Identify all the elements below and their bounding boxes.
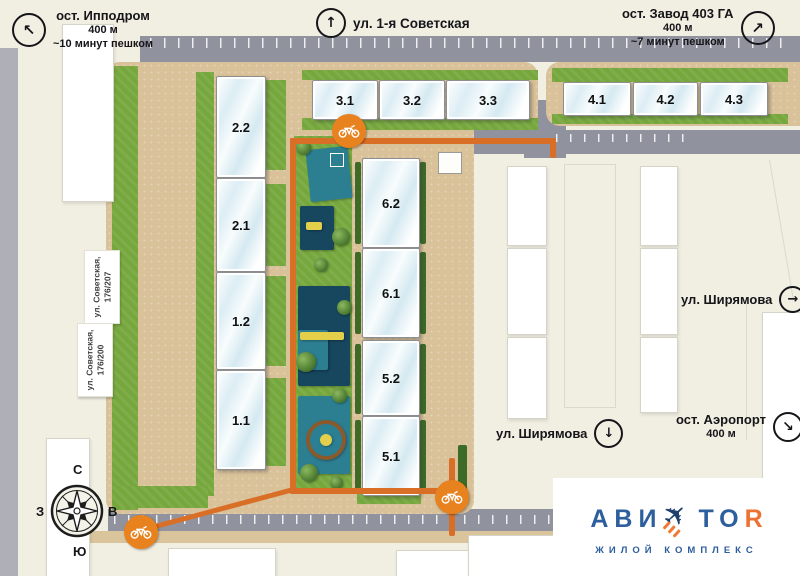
utility-box: [438, 152, 462, 174]
building-label: 6.2: [382, 196, 400, 211]
tree: [332, 388, 347, 403]
building-label: 5.2: [382, 371, 400, 386]
grass-strip: [266, 80, 286, 170]
building-4-1[interactable]: 4.1: [563, 82, 631, 116]
address-text: ул. Советская, 176/200: [84, 330, 106, 391]
building-5-2[interactable]: 5.2: [362, 340, 420, 416]
building-4-2[interactable]: 4.2: [633, 82, 698, 116]
logo-text-2: ТО: [698, 505, 744, 534]
compass-east-label: В: [108, 504, 117, 519]
building-6-2[interactable]: 6.2: [362, 158, 420, 248]
nav-shiryamova-right-text: ул. Ширямова: [681, 292, 772, 307]
neighbor-building: [507, 337, 547, 419]
logo: АВИ ✈ ТО R: [590, 499, 762, 541]
address-text: ул. Советская, 176/207: [91, 257, 113, 318]
grass-strip: [266, 378, 286, 466]
grass-strip: [196, 72, 214, 496]
address-label: ул. Советская, 176/200: [77, 323, 113, 397]
playground-feature: [300, 332, 344, 340]
neighbor-building-outline: [564, 164, 616, 408]
playground-feature-icon: [330, 153, 344, 167]
building-2-2[interactable]: 2.2: [216, 76, 266, 178]
bike-path-segment: [290, 138, 296, 494]
neighbor-building: [507, 248, 547, 335]
nav-zavod-text: ост. Завод 403 ГА 400 м ~7 минут пешком: [622, 6, 734, 50]
compass-west-label: З: [36, 504, 44, 519]
grass-strip: [266, 276, 286, 366]
road-left: [0, 48, 18, 576]
building-1-2[interactable]: 1.2: [216, 272, 266, 370]
playground-feature: [306, 222, 322, 230]
building-3-3[interactable]: 3.3: [446, 80, 530, 120]
logo-text-1: АВИ: [590, 505, 662, 534]
building-4-3[interactable]: 4.3: [700, 82, 768, 116]
logo-text-3: R: [745, 505, 763, 534]
building-label: 3.2: [403, 93, 421, 108]
grass-strip: [552, 68, 788, 82]
arrow-up-right-icon: ↗: [741, 11, 775, 45]
bicycle-icon: [130, 525, 152, 540]
bike-marker: [124, 515, 158, 549]
nav-airport-text: ост. Аэропорт 400 м: [676, 412, 766, 442]
compass-south-label: Ю: [73, 544, 86, 559]
neighbor-building: [640, 337, 678, 413]
building-5-1[interactable]: 5.1: [362, 416, 420, 496]
hedge-row: [420, 420, 426, 492]
hedge-row: [355, 344, 361, 414]
compass: С Ю З В: [36, 460, 118, 560]
building-label: 5.1: [382, 449, 400, 464]
building-label: 3.1: [336, 93, 354, 108]
grass-strip: [112, 486, 208, 508]
bike-path-segment: [290, 138, 556, 144]
tree: [337, 300, 352, 315]
neighbor-building: [640, 248, 678, 335]
building-label: 3.3: [479, 93, 497, 108]
grass-strip: [266, 184, 286, 266]
nav-sovetskaya-text: ул. 1-я Советская: [353, 16, 470, 31]
site-plan-canvas: 2.2 2.1 1.2 1.1 3.1 3.2 3.3 4.1 4.2 4.3 …: [0, 0, 800, 576]
hedge-row: [355, 420, 361, 492]
neighbor-building: [168, 548, 276, 576]
building-label: 4.3: [725, 92, 743, 107]
hedge-row: [420, 344, 426, 414]
building-label: 1.2: [232, 314, 250, 329]
bike-path-segment: [550, 142, 556, 158]
neighbor-building: [640, 166, 678, 246]
nav-shiryamova-down-text: ул. Ширямова: [496, 426, 587, 441]
building-label: 2.1: [232, 218, 250, 233]
nav-airport: ост. Аэропорт 400 м ↘: [676, 412, 800, 442]
arrow-up-icon: ↑: [316, 8, 346, 38]
playground-feature: [320, 434, 332, 446]
address-label: ул. Советская, 176/207: [84, 250, 120, 324]
arrow-down-icon: ↓: [594, 419, 623, 448]
bike-marker: [332, 114, 366, 148]
nav-shiryamova-right: ул. Ширямова →: [681, 286, 800, 313]
hedge-row: [420, 162, 426, 244]
hedge-row: [355, 162, 361, 244]
bike-marker: [435, 480, 469, 514]
street-curb-line: [769, 160, 794, 300]
hedge-row: [355, 252, 361, 334]
arrow-up-left-icon: ↖: [12, 13, 46, 47]
building-2-1[interactable]: 2.1: [216, 178, 266, 272]
neighbor-building: [468, 535, 556, 576]
compass-rose-icon: [49, 483, 105, 539]
building-3-2[interactable]: 3.2: [379, 80, 445, 120]
parking-dashes-right-top: [556, 134, 696, 142]
nav-shiryamova-down: ул. Ширямова ↓: [496, 419, 623, 448]
tree: [332, 228, 350, 246]
logo-card: АВИ ✈ ТО R ЖИЛОЙ КОМПЛЕКС: [553, 478, 800, 576]
building-label: 2.2: [232, 120, 250, 135]
bike-path-segment: [290, 488, 456, 494]
building-label: 4.1: [588, 92, 606, 107]
building-label: 1.1: [232, 413, 250, 428]
building-1-1[interactable]: 1.1: [216, 370, 266, 470]
building-label: 4.2: [656, 92, 674, 107]
nav-sovetskaya: ↑ ул. 1-я Советская: [316, 8, 470, 38]
logo-subtitle: ЖИЛОЙ КОМПЛЕКС: [595, 545, 757, 556]
grass-strip: [302, 70, 538, 80]
nav-hippodrome-text: ост. Ипподром 400 м ~10 минут пешком: [53, 8, 153, 52]
hedge-row: [420, 252, 426, 334]
arrow-right-icon: →: [779, 286, 800, 313]
neighbor-building: [762, 312, 800, 484]
tree: [296, 352, 316, 372]
logo-jet-icon: ✈: [660, 499, 696, 535]
nav-hippodrome: ↖ ост. Ипподром 400 м ~10 минут пешком: [12, 8, 153, 52]
tree: [300, 464, 318, 482]
building-6-1[interactable]: 6.1: [362, 248, 420, 338]
compass-north-label: С: [73, 462, 82, 477]
bicycle-icon: [338, 124, 360, 139]
tree: [314, 258, 328, 272]
arrow-down-right-icon: ↘: [773, 412, 800, 442]
neighbor-building: [507, 166, 547, 246]
building-label: 6.1: [382, 286, 400, 301]
nav-zavod: ост. Завод 403 ГА 400 м ~7 минут пешком …: [622, 6, 775, 50]
playground-zone: [305, 146, 352, 202]
bicycle-icon: [441, 490, 463, 505]
